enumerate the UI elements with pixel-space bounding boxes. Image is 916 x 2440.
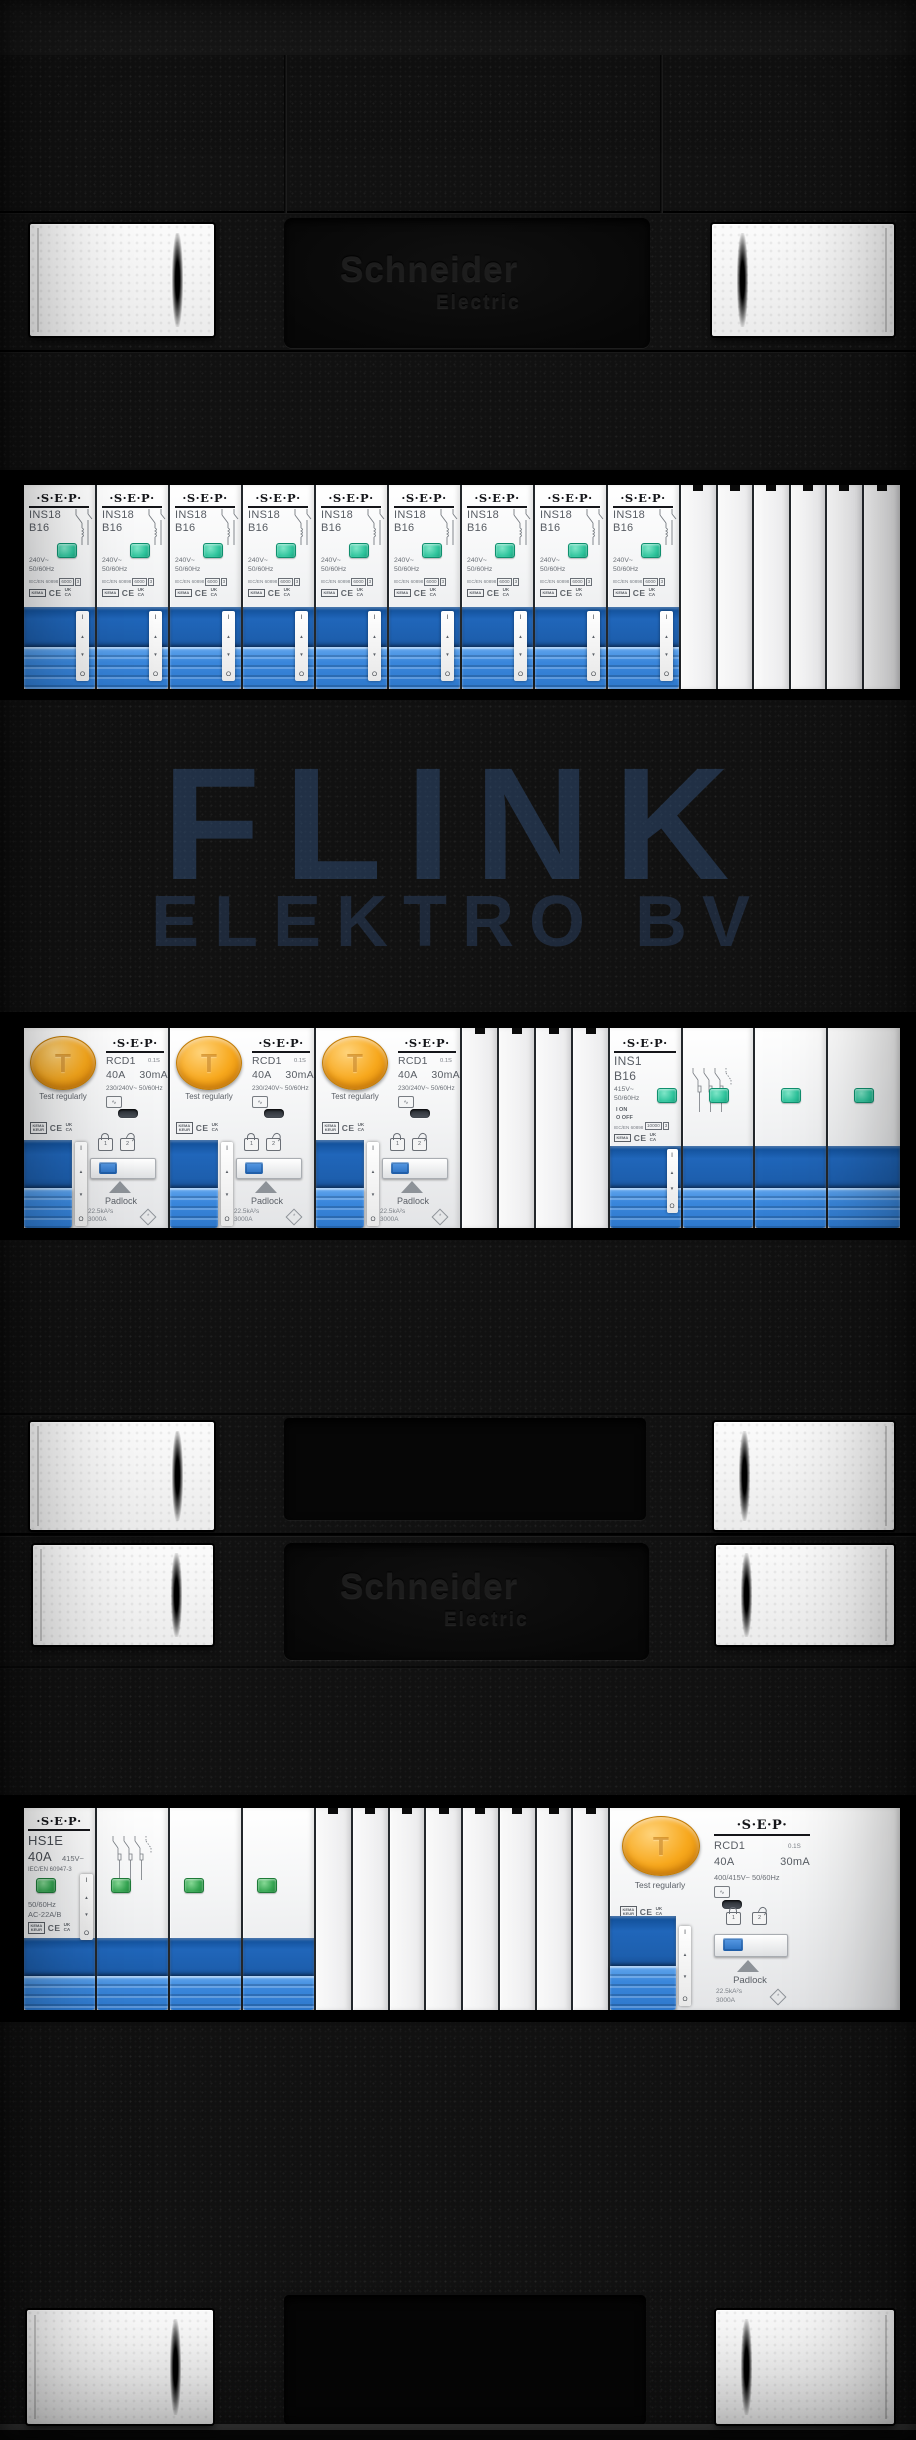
sep-logo: ·S·E·P· [102,491,162,508]
rcd-switch-handle[interactable] [170,1188,218,1228]
voltage-label: 230/240V~ 50/60Hz [398,1085,455,1092]
kema-mark: KEMA [394,589,411,597]
delay-label: 0.1S [294,1058,306,1064]
status-indicator [36,1878,56,1893]
padlock-slider-knob[interactable] [245,1162,263,1174]
ukca-mark: UKCA [430,588,437,598]
latch-clip[interactable] [716,1545,894,1645]
breaker-model: INS18 [321,509,353,521]
test-button[interactable]: T [176,1036,242,1090]
test-label: Test regularly [170,1092,248,1101]
kema-mark: KEMA [614,1134,631,1142]
rated-current: 40A [252,1069,272,1081]
blind-cover-module [537,1808,574,2010]
blind-cover-module [499,1028,536,1228]
distribution-board: Schneider Electric FLINK ELEKTRO BV ·S·E… [0,0,916,2440]
standard-label: IEC/EN 6089860003 [394,578,446,586]
rcd-model: RCD1 [398,1055,428,1067]
circuit-diagram-icon [509,507,531,547]
certification-marks: KEMA CE UKCA [102,588,144,598]
status-indicator [495,543,515,558]
transformer-icon: ∿ [106,1096,122,1108]
sep-logo: ·S·E·P· [252,1036,310,1053]
circuit-breaker-ins18: ·S·E·P· INS18 B16 240V~ 50/60Hz IEC/EN 6… [170,485,243,689]
trip-indicator-window [410,1109,430,1118]
padlock-label: Padlock [378,1196,448,1206]
padlock-locked-icon: 1 [98,1138,113,1151]
certification-marks: KEMA CE UKCA [394,588,436,598]
certification-marks: KEMA CE UKCA [540,588,582,598]
surge-class-icon: * [140,1209,157,1226]
circuit-diagram-icon [582,507,604,547]
breaker-switch-handle[interactable] [683,1188,754,1228]
padlock-slider-knob[interactable] [99,1162,117,1174]
breaker-switch-handle[interactable] [755,1188,826,1228]
breaker-rating: B16 [614,1069,636,1083]
latch-clip[interactable] [30,224,214,336]
transformer-icon: ∿ [398,1096,414,1108]
enclosure-seam [0,1413,916,1416]
kema-mark: KEMA [321,589,338,597]
frequency-label: 50/60Hz [613,566,638,573]
circuit-breaker-ins18: ·S·E·P· INS18 B16 240V~ 50/60Hz IEC/EN 6… [24,485,97,689]
padlock-pointer-icon [255,1181,277,1193]
sep-logo: ·S·E·P· [394,491,454,508]
kema-mark: KEMA [248,589,265,597]
surge-class-icon: * [286,1209,303,1226]
voltage-label: 415V~ [62,1854,84,1863]
blind-cover-module [353,1808,390,2010]
breaker-pole [755,1028,828,1228]
certification-marks: KEMA CE UKCA [248,588,290,598]
test-label: Test regularly [612,1880,708,1890]
frequency-label: 50/60Hz [614,1095,639,1102]
on-off-indicator: I▲▼O [76,611,89,681]
padlock-slider-knob[interactable] [391,1162,409,1174]
rcd-model: RCD1 [106,1055,136,1067]
brand-name: Schneider [340,1567,518,1607]
blind-cover-module [316,1808,353,2010]
status-indicator [111,1878,131,1893]
frequency-label: 50/60Hz [321,566,346,573]
ukca-mark: UKCA [284,588,291,598]
on-off-indicator: I▲▼O [80,1874,93,1940]
padlock-unlocked-icon: 2 [266,1138,281,1151]
standard-label: IEC/EN 6089860003 [29,578,81,586]
residual-current: 30mA [424,1069,460,1081]
kema-mark: KEMA [613,589,630,597]
frequency-label: 50/60Hz [175,566,200,573]
residual-current: 30mA [762,1856,810,1868]
breaker-model: INS1 [614,1054,642,1068]
standard-label: IEC/EN 6089860003 [102,578,154,586]
padlock-slider [236,1158,302,1179]
padlock-pointer-icon [737,1960,759,1972]
voltage-label: 240V~ [394,557,414,564]
on-off-indicator: I▲▼O [75,1142,87,1226]
circuit-diagram-icon [363,507,385,547]
padlock-label: Padlock [232,1196,302,1206]
brand-sub: Electric [436,292,521,314]
voltage-label: 240V~ [102,557,122,564]
padlock-label: Padlock [86,1196,156,1206]
breaker-ins1-pole1: ·S·E·P· INS1 B16 415V~ 50/60Hz I ON O OF… [610,1028,683,1228]
let-through-energy: 22.5kA²s [380,1208,405,1215]
voltage-label: 240V~ [175,557,195,564]
frequency-label: 50/60Hz [28,1900,56,1909]
padlock-locked-icon: 1 [390,1138,405,1151]
status-indicator [349,543,369,558]
rcd-400v: T Test regularly ·S·E·P· RCD1 0.1S 40A 3… [610,1808,900,2010]
delay-label: 0.1S [148,1058,160,1064]
breaker-model: INS18 [248,509,280,521]
latch-clip[interactable] [716,2310,894,2424]
status-indicator [641,543,661,558]
circuit-breaker-ins18: ·S·E·P· INS18 B16 240V~ 50/60Hz IEC/EN 6… [608,485,681,689]
kema-keur-mark: KEMAKEUR [322,1122,339,1134]
kema-keur-mark: KEMAKEUR [176,1122,193,1134]
status-indicator [781,1088,801,1103]
kema-mark: KEMA [102,589,119,597]
ukca-mark: UKCA [357,588,364,598]
circuit-breaker-ins18: ·S·E·P· INS18 B16 240V~ 50/60Hz IEC/EN 6… [389,485,462,689]
padlock-unlocked-icon: 2 [412,1138,427,1151]
on-off-indicator: I▲▼O [222,611,235,681]
blind-cover-module [573,1808,610,2010]
ce-mark: CE [342,1123,355,1133]
voltage-label: 240V~ [29,557,49,564]
voltage-label: 240V~ [248,557,268,564]
frequency-label: 50/60Hz [248,566,273,573]
ce-mark: CE [341,588,354,598]
standard-label: IEC/EN 60898 [614,1125,643,1130]
standard-label: IEC/EN 6089860003 [540,578,592,586]
residual-current: 30mA [132,1069,168,1081]
let-through-energy: 22.5kA²s [234,1208,259,1215]
rcd-switch-handle[interactable] [316,1188,364,1228]
switch-body [243,1938,314,1976]
kema-keur-mark: KEMAKEUR [30,1122,47,1134]
status-indicator [203,543,223,558]
schneider-brand-plate: Schneider Electric [284,1543,649,1660]
enclosure-seam [0,350,916,353]
status-indicator [854,1088,874,1103]
enclosure-seam [660,55,663,213]
watermark-line2: ELEKTRO BV [0,886,916,958]
blind-cover-module [573,1028,610,1228]
certification-marks: KEMA CE UKCA [175,588,217,598]
status-indicator [568,543,588,558]
watermark-line1: FLINK [0,744,916,904]
latch-clip[interactable] [714,1422,894,1530]
conditional-current: 3000A [380,1216,398,1223]
status-indicator [657,1088,677,1103]
certification-marks: KEMA CE UKCA [614,1133,656,1143]
ce-mark: CE [633,588,646,598]
breaker-model: INS18 [29,509,61,521]
rated-current: 40A [714,1856,734,1868]
ce-mark: CE [487,588,500,598]
sep-logo: ·S·E·P· [714,1818,810,1836]
ukca-mark: UKCA [576,588,583,598]
ukca-mark: UKCA [211,588,218,598]
rated-current: 40A [106,1069,126,1081]
sep-logo: ·S·E·P· [248,491,308,508]
trip-indicator-window [264,1109,284,1118]
voltage-label: 240V~ [540,557,560,564]
switch-body [24,1938,95,1976]
breaker-rating: B16 [248,522,268,534]
test-button[interactable]: T [30,1036,96,1090]
rated-current: 40A [398,1069,418,1081]
sep-logo: ·S·E·P· [467,491,527,508]
padlock-label: Padlock [710,1975,790,1986]
conditional-current: 3000A [88,1216,106,1223]
breaker-switch-handle[interactable] [828,1188,901,1228]
enclosure-recess [284,1418,646,1520]
ce-mark: CE [196,1123,209,1133]
on-off-indicator: I▲▼O [667,1149,678,1213]
circuit-diagram-icon [290,507,312,547]
enclosure-seam [284,55,287,213]
sep-logo: ·S·E·P· [613,491,673,508]
enclosure-bottom-edge [0,2430,916,2440]
breaker-rating: B16 [321,522,341,534]
breaker-model: INS18 [102,509,134,521]
blind-cover-module [718,485,755,689]
breaker-model: INS18 [540,509,572,521]
kema-keur-mark: KEMAKEUR [28,1922,45,1934]
frequency-label: 50/60Hz [540,566,565,573]
standard-label: IEC/EN 60947-3 [28,1867,72,1873]
circuit-diagram-icon [217,507,239,547]
latch-clip[interactable] [33,1545,213,1645]
test-button[interactable]: T [622,1816,700,1876]
test-label: Test regularly [316,1092,394,1101]
status-indicator [709,1088,729,1103]
enclosure-top-edge [0,0,916,55]
on-off-indicator: I▲▼O [295,611,308,681]
on-off-indicator: I▲▼O [441,611,454,681]
padlock-pointer-icon [109,1181,131,1193]
status-indicator [257,1878,277,1893]
padlock-pointer-icon [401,1181,423,1193]
ukca-mark: UKCA [65,588,72,598]
rcd-switch-handle[interactable] [610,1966,676,2010]
sep-logo: ·S·E·P· [28,1814,90,1831]
test-label: Test regularly [24,1092,102,1101]
rcd-230v: T Test regularly ·S·E·P· RCD1 0.1S 40A 3… [170,1028,316,1228]
circuit-diagram-icon [107,1834,153,1884]
conditional-current: 3000A [234,1216,252,1223]
din-row-2: T Test regularly ·S·E·P· RCD1 0.1S 40A 3… [24,1028,900,1228]
switch-body [316,1140,364,1188]
breaker-pole [97,1808,170,2010]
frequency-label: 50/60Hz [102,566,127,573]
brand-name: Schneider [340,250,518,290]
padlock-unlocked-icon: 2 [120,1138,135,1151]
circuit-diagram-icon [436,507,458,547]
breaker-switch-handle[interactable] [97,1976,168,2010]
breaker-model: INS18 [467,509,499,521]
sep-logo: ·S·E·P· [540,491,600,508]
rcd-model: RCD1 [714,1840,745,1852]
transformer-icon: ∿ [252,1096,268,1108]
ce-mark: CE [195,588,208,598]
delay-label: 0.1S [788,1843,801,1850]
circuit-breaker-ins18: ·S·E·P· INS18 B16 240V~ 50/60Hz IEC/EN 6… [535,485,608,689]
voltage-label: 240V~ [613,557,633,564]
trip-indicator-window [118,1109,138,1118]
on-off-indicator: I▲▼O [221,1142,233,1226]
status-indicator [184,1878,204,1893]
circuit-breaker-ins18: ·S·E·P· INS18 B16 240V~ 50/60Hz IEC/EN 6… [243,485,316,689]
padlock-slider [90,1158,156,1179]
latch-clip[interactable] [30,1422,214,1530]
transformer-icon: ∿ [714,1886,730,1898]
rating-codes: 100003 [644,1114,669,1132]
on-off-indicator: I▲▼O [149,611,162,681]
circuit-diagram-icon [655,507,677,547]
rcd-230v: T Test regularly ·S·E·P· RCD1 0.1S 40A 3… [24,1028,170,1228]
din-row-3: ·S·E·P· HS1E 40A 415V~ IEC/EN 60947-3 50… [24,1808,900,2010]
voltage-label: 230/240V~ 50/60Hz [106,1085,163,1092]
sep-logo: ·S·E·P· [175,491,235,508]
ce-mark: CE [49,588,62,598]
frequency-label: 50/60Hz [467,566,492,573]
breaker-model: INS18 [394,509,426,521]
frequency-label: 50/60Hz [29,566,54,573]
switch-body [755,1146,826,1188]
status-indicator [276,543,296,558]
kema-mark: KEMA [467,589,484,597]
circuit-diagram-icon [71,507,93,547]
rcd-230v: T Test regularly ·S·E·P· RCD1 0.1S 40A 3… [316,1028,462,1228]
breaker-rating: B16 [613,522,633,534]
latch-clip[interactable] [27,2310,213,2424]
breaker-pole [170,1808,243,2010]
switch-body [170,1140,218,1188]
ce-mark: CE [48,1923,61,1933]
enclosure-seam [0,1666,916,1669]
breaker-rating: B16 [29,522,49,534]
circuit-breaker-ins18: ·S·E·P· INS18 B16 240V~ 50/60Hz IEC/EN 6… [97,485,170,689]
test-button[interactable]: T [322,1036,388,1090]
ukca-mark: UKCA [650,1133,657,1143]
blind-cover-module [390,1808,427,2010]
breaker-switch-handle[interactable] [170,1976,241,2010]
rated-current: 40A [28,1849,52,1864]
blind-cover-module [462,1028,499,1228]
sep-logo: ·S·E·P· [614,1036,676,1053]
status-indicator [130,543,150,558]
padlock-locked-icon: 1 [726,1912,741,1925]
main-switch-handle[interactable] [24,1976,95,2010]
conditional-current: 3000A [716,1997,735,2004]
ukca-mark: UKCA [138,588,145,598]
sep-logo: ·S·E·P· [321,491,381,508]
ukca-mark: UKCA [212,1123,219,1133]
kema-mark: KEMA [540,589,557,597]
switch-body [828,1146,901,1188]
ce-mark: CE [414,588,427,598]
utilization-category: AC-22A/B [28,1910,61,1919]
switch-body [170,1938,241,1976]
off-label: O OFF [616,1115,633,1121]
let-through-energy: 22.5kA²s [88,1208,113,1215]
certification-marks: KEMAKEUR CE UKCA [176,1122,218,1134]
on-off-indicator: I▲▼O [660,611,673,681]
breaker-switch-handle[interactable] [243,1976,314,2010]
standard-label: IEC/EN 6089860003 [248,578,300,586]
switch-body [683,1146,754,1188]
ukca-mark: UKCA [649,588,656,598]
schneider-brand-plate: Schneider Electric [284,218,650,348]
rcd-model: RCD1 [252,1055,282,1067]
ce-mark: CE [268,588,281,598]
on-off-indicator: I▲▼O [587,611,600,681]
padlock-slider [382,1158,448,1179]
padlock-locked-icon: 1 [244,1138,259,1151]
ukca-mark: UKCA [66,1123,73,1133]
status-indicator [422,543,442,558]
blind-cover-module [426,1808,463,2010]
standard-label: IEC/EN 6089860003 [175,578,227,586]
voltage-label: 400/415V~ 50/60Hz [714,1873,780,1882]
certification-marks: KEMAKEUR CE UKCA [30,1122,72,1134]
rcd-switch-handle[interactable] [24,1188,72,1228]
padlock-slider-knob[interactable] [723,1938,743,1951]
surge-class-icon: * [432,1209,449,1226]
certification-marks: KEMAKEUR CE UKCA [28,1922,70,1934]
blind-cover-module [500,1808,537,2010]
blind-cover-module [463,1808,500,2010]
latch-clip[interactable] [712,224,894,336]
kema-mark: KEMA [175,589,192,597]
certification-marks: KEMA CE UKCA [321,588,363,598]
ce-mark: CE [122,588,135,598]
circuit-breaker-ins18: ·S·E·P· INS18 B16 240V~ 50/60Hz IEC/EN 6… [316,485,389,689]
enclosure-recess [284,2295,646,2425]
ukca-mark: UKCA [64,1923,71,1933]
standard-label: IEC/EN 6089860003 [613,578,665,586]
blind-cover-module [681,485,718,689]
breaker-pole [828,1028,901,1228]
brand-sub: Electric [444,1609,529,1631]
breaker-model: INS18 [613,509,645,521]
residual-current: 30mA [278,1069,314,1081]
kema-mark: KEMA [29,589,46,597]
enclosure-joint-seam [0,1533,916,1537]
main-switch-hs1e-pole1: ·S·E·P· HS1E 40A 415V~ IEC/EN 60947-3 50… [24,1808,97,2010]
blind-cover-module [754,485,791,689]
on-off-indicator: I▲▼O [367,1142,379,1226]
blind-cover-module [827,485,864,689]
ukca-mark: UKCA [503,588,510,598]
let-through-energy: 22.5kA²s [716,1988,742,1995]
circuit-diagram-icon [144,507,166,547]
voltage-label: 240V~ [467,557,487,564]
on-off-indicator: I▲▼O [679,1926,691,2006]
sep-logo: ·S·E·P· [398,1036,456,1053]
blind-cover-module [791,485,828,689]
standard-label: IEC/EN 6089860003 [321,578,373,586]
voltage-label: 240V~ [321,557,341,564]
switch-body [24,1140,72,1188]
blind-cover-module [864,485,901,689]
breaker-rating: B16 [175,522,195,534]
status-indicator [57,543,77,558]
